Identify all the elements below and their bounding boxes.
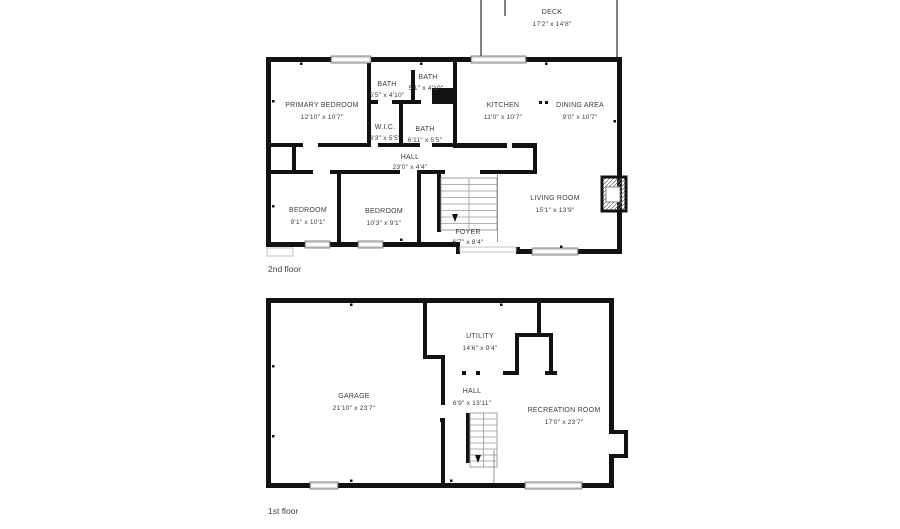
- porch-step: [267, 248, 293, 256]
- wall-segment: [453, 62, 457, 148]
- entry-threshold: [460, 247, 516, 252]
- room-label-garage: GARAGE: [338, 393, 370, 400]
- wall-segment: [512, 143, 537, 148]
- wall-segment: [271, 170, 313, 174]
- room-label-bedroom-2: BEDROOM: [365, 208, 403, 215]
- room-dims-recreation-room: 17'0" x 23'7": [545, 419, 584, 426]
- wall-segment: [537, 303, 541, 335]
- wall-segment: [515, 333, 553, 337]
- wall-segment: [515, 333, 519, 375]
- wall-segment: [271, 143, 303, 147]
- room-label-deck: DECK: [542, 9, 563, 16]
- room-dims-deck: 17'2" x 14'8": [533, 21, 572, 28]
- room-dims-bedroom-2: 10'3" x 9'1": [367, 220, 402, 227]
- floor-plan-page: DECK 17'2" x 14'8" PRIMARY BEDROOM 12'10…: [0, 0, 900, 529]
- room-dims-kitchen: 11'0" x 10'7": [484, 114, 523, 121]
- room-dims-hall: 6'9" x 13'11": [453, 400, 492, 407]
- room-dims-living-room: 15'1" x 13'9": [536, 207, 575, 214]
- exterior-walls: [266, 298, 628, 488]
- wall-segment: [423, 303, 427, 359]
- wall-segment: [423, 355, 445, 359]
- room-label-bedroom-1: BEDROOM: [289, 207, 327, 214]
- floor-label-2nd: 2nd floor: [268, 264, 301, 274]
- wall-segment: [545, 371, 557, 375]
- wall-segment: [533, 148, 537, 174]
- firebox: [606, 187, 620, 202]
- window: [331, 56, 371, 63]
- deck-sliding-door: [471, 56, 526, 63]
- room-dims-bath-3: 6'11" x 5'5": [408, 137, 443, 144]
- window: [310, 482, 338, 489]
- wall-segment: [453, 143, 507, 148]
- room-label-primary-bedroom: PRIMARY BEDROOM: [285, 102, 359, 109]
- floor-plan-canvas: DECK 17'2" x 14'8" PRIMARY BEDROOM 12'10…: [0, 0, 900, 529]
- wall-segment: [337, 174, 341, 242]
- wall-segment: [441, 359, 445, 405]
- chimney-bump: [609, 454, 628, 458]
- room-dims-bath-1: 5'5" x 4'10": [370, 92, 405, 99]
- room-label-bath-2: BATH: [418, 74, 437, 81]
- wall-segment: [266, 57, 622, 62]
- chimney-bump: [624, 430, 628, 458]
- wall-segment: [437, 174, 441, 232]
- wall-segment: [441, 418, 445, 483]
- room-dims-utility: 14'6" x 9'4": [463, 345, 498, 352]
- wall-segment: [292, 147, 296, 171]
- room-dims-dining-area: 9'0" x 10'7": [563, 114, 598, 121]
- room-label-utility: UTILITY: [466, 333, 494, 340]
- wall-segment: [549, 333, 553, 375]
- wall-segment: [341, 170, 400, 174]
- room-dims-garage: 21'10" x 23'7": [333, 405, 376, 412]
- wall-segment: [367, 100, 378, 104]
- window: [525, 482, 582, 489]
- door-jamb: [476, 371, 480, 375]
- room-label-dining-area: DINING AREA: [556, 102, 604, 109]
- room-label-bath-1: BATH: [377, 81, 396, 88]
- room-dims-bedroom-1: 9'1" x 10'1": [291, 219, 326, 226]
- wall-segment: [480, 170, 537, 174]
- wall-segment: [609, 298, 614, 434]
- window: [358, 241, 383, 248]
- room-labels-first-floor: UTILITY 14'6" x 9'4" GARAGE 21'10" x 23'…: [333, 333, 601, 426]
- room-label-living-room: LIVING ROOM: [530, 195, 579, 202]
- room-dims-bath-2: 5'1" x 4'10": [409, 85, 444, 92]
- first-floor-plan: UTILITY 14'6" x 9'4" GARAGE 21'10" x 23'…: [266, 298, 628, 516]
- window: [532, 248, 578, 255]
- stair-wall: [466, 413, 470, 463]
- staircase: [466, 413, 497, 483]
- room-dims-primary-bedroom: 12'10" x 10'7": [301, 114, 344, 121]
- room-label-wic: W.I.C.: [375, 124, 396, 131]
- column-marker: [539, 101, 542, 104]
- room-dims-wic: 3'3" x 5'5": [369, 135, 400, 142]
- room-label-recreation-room: RECREATION ROOM: [528, 407, 601, 414]
- room-label-hall: HALL: [401, 154, 420, 161]
- room-dims-hall: 23'0" x 4'4": [393, 164, 428, 171]
- room-label-kitchen: KITCHEN: [487, 102, 519, 109]
- wall-segment: [503, 371, 517, 375]
- wall-segment: [392, 100, 421, 104]
- wall-segment: [266, 298, 614, 303]
- window: [305, 241, 330, 248]
- room-label-hall: HALL: [463, 388, 482, 395]
- wall-segment: [417, 174, 421, 242]
- wall-segment: [318, 143, 367, 147]
- wall-segment: [617, 57, 622, 254]
- wall-segment: [266, 57, 271, 247]
- column-marker: [545, 101, 548, 104]
- wall-segment: [266, 298, 271, 488]
- room-label-foyer: FOYER: [455, 229, 480, 236]
- second-floor-plan: DECK 17'2" x 14'8" PRIMARY BEDROOM 12'10…: [266, 0, 626, 274]
- door-jamb: [440, 418, 444, 422]
- wall-segment: [609, 458, 614, 488]
- door-jamb: [462, 371, 466, 375]
- floor-label-1st: 1st floor: [268, 506, 298, 516]
- fireplace: [602, 177, 626, 211]
- room-label-bath-3: BATH: [415, 126, 434, 133]
- room-dims-foyer: 6'7" x 8'4": [452, 239, 483, 246]
- wall-segment: [330, 170, 341, 174]
